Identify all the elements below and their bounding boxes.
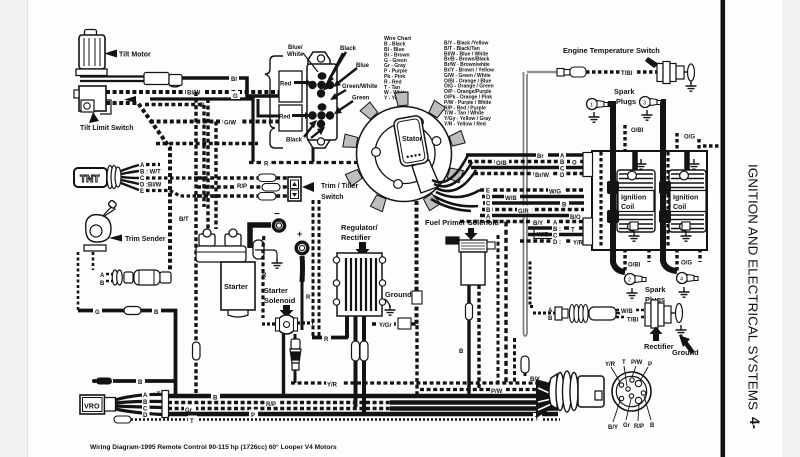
svg-text:Bl: Bl (231, 77, 237, 83)
svg-text:4-: 4- (747, 417, 762, 429)
svg-text:: T: : T (153, 392, 161, 398)
svg-text:A: A (553, 221, 558, 227)
svg-text:E: E (486, 189, 490, 195)
svg-text:P: P (648, 362, 652, 368)
svg-text:B: B (650, 423, 655, 429)
svg-text:A: A (486, 215, 491, 221)
svg-text:Gr: Gr (623, 423, 631, 429)
svg-text:B: B (548, 316, 553, 322)
svg-text:Green/White: Green/White (342, 84, 378, 90)
svg-text:−: − (274, 209, 280, 220)
svg-text:Br/W: Br/W (535, 173, 549, 179)
svg-text:Tilt Limit Switch: Tilt Limit Switch (80, 125, 134, 132)
svg-text:Y/R: Y/R (573, 241, 584, 247)
svg-text:A: A (560, 154, 565, 160)
svg-text:W/G: W/G (549, 190, 561, 196)
svg-text:4: 4 (680, 277, 683, 283)
svg-text:Plugs: Plugs (616, 97, 636, 106)
svg-text:C: C (140, 176, 145, 182)
svg-text:Coil: Coil (621, 204, 634, 211)
svg-text:B/Y: B/Y (533, 221, 543, 227)
svg-text:+: + (297, 229, 302, 239)
svg-text:D: D (560, 173, 565, 179)
svg-text:Black: Black (286, 138, 303, 144)
svg-text:B :: B : (553, 227, 561, 233)
svg-text:B: B (154, 310, 159, 316)
svg-text:C: C (560, 167, 565, 173)
svg-text:B: B (560, 160, 565, 166)
svg-text:G: G (95, 310, 100, 316)
svg-text:C: C (553, 234, 558, 240)
svg-text:Engine Temperature Switch: Engine Temperature Switch (563, 46, 660, 55)
svg-text:B: B (459, 349, 464, 355)
svg-text:P/W: P/W (631, 360, 643, 366)
svg-text:R: R (306, 295, 311, 301)
svg-text:T: T (571, 228, 575, 234)
svg-text:Spark: Spark (614, 87, 635, 96)
svg-text:D :Bl/W: D :Bl/W (140, 183, 162, 189)
svg-text:Regulator/: Regulator/ (341, 223, 378, 232)
svg-text:O/Bl: O/Bl (628, 263, 641, 269)
svg-text:W/B: W/B (621, 309, 633, 315)
svg-text:W/B: W/B (505, 196, 517, 202)
svg-text:Starter: Starter (264, 286, 288, 295)
svg-text:B: B (138, 380, 143, 386)
svg-text:TNT: TNT (80, 174, 99, 185)
svg-text:Bl/W: Bl/W (187, 91, 201, 97)
svg-text:A: A (100, 273, 105, 279)
svg-text:R/P: R/P (634, 424, 644, 430)
svg-text:Rectifier: Rectifier (644, 342, 674, 351)
svg-text:Trim / Tiller: Trim / Tiller (321, 183, 358, 190)
svg-text:G: G (233, 94, 238, 100)
svg-text:T: T (190, 419, 194, 425)
svg-text:Ground: Ground (672, 348, 699, 357)
svg-text:A: A (140, 163, 145, 169)
svg-text:Tilt Motor: Tilt Motor (119, 52, 151, 59)
svg-text:C: C (143, 407, 148, 413)
svg-text:Ignition: Ignition (673, 195, 698, 202)
svg-text:1: 1 (590, 103, 593, 109)
svg-text:Wiring Diagram-1995 Remote Con: Wiring Diagram-1995 Remote Control 90-11… (90, 443, 337, 451)
svg-text:Blue/: Blue/ (288, 45, 303, 51)
svg-text:T: T (622, 360, 626, 366)
svg-text:B/Y: B/Y (608, 425, 618, 431)
svg-text:Black: Black (340, 46, 357, 52)
svg-text:Ignition: Ignition (621, 195, 646, 202)
svg-text:B: B (143, 400, 148, 406)
svg-text:B: B (562, 203, 567, 209)
svg-text:VRO: VRO (84, 402, 100, 411)
svg-text:R: R (324, 337, 329, 343)
svg-text:C: C (486, 202, 491, 208)
svg-text:D: D (486, 195, 491, 201)
svg-text:Y/Gr: Y/Gr (379, 323, 392, 329)
svg-text:Rectifier: Rectifier (341, 233, 371, 242)
svg-text:Blue: Blue (356, 63, 370, 69)
svg-text:O/G: O/G (681, 261, 692, 267)
svg-text:Solenoid: Solenoid (264, 296, 296, 305)
svg-text:B: B (100, 281, 105, 287)
svg-text:Y/R: Y/R (605, 362, 616, 368)
svg-text:O/G: O/G (684, 135, 695, 141)
svg-text:B : W/T: B : W/T (140, 170, 161, 176)
svg-text:R: R (264, 162, 269, 168)
svg-text:Br: Br (537, 154, 544, 160)
svg-text:B: B (486, 208, 491, 214)
svg-text:2: 2 (628, 278, 631, 284)
svg-text:G/W: G/W (224, 121, 236, 127)
svg-text:B/T: B/T (179, 217, 189, 223)
svg-text:B: B (213, 396, 218, 402)
svg-text:Red: Red (280, 82, 292, 88)
svg-text:Switch: Switch (321, 194, 344, 201)
svg-text:D: D (143, 413, 148, 419)
svg-text:A: A (548, 308, 553, 314)
svg-text:E: E (140, 189, 144, 195)
svg-text:Starter: Starter (224, 282, 248, 291)
svg-text:Y/R - Yellow / Red: Y/R - Yellow / Red (444, 122, 486, 128)
svg-text:Red: Red (279, 115, 291, 121)
svg-text:Trim Sender: Trim Sender (125, 236, 166, 243)
svg-text:Ground: Ground (385, 290, 412, 299)
svg-text:Green: Green (352, 96, 370, 102)
svg-text:O/Bl: O/Bl (631, 128, 644, 134)
svg-text:O: O (572, 161, 577, 167)
svg-text:P: P (251, 413, 255, 419)
svg-text:IGNITION AND ELECTRICAL SYSTEM: IGNITION AND ELECTRICAL SYSTEMS (746, 164, 761, 410)
svg-text:3: 3 (643, 101, 646, 107)
svg-text:D :: D : (553, 240, 561, 246)
svg-text:White: White (287, 52, 304, 58)
svg-text:Spark: Spark (645, 285, 666, 294)
svg-text:T/Bl: T/Bl (627, 318, 639, 324)
svg-text:T/Bl: T/Bl (621, 71, 633, 77)
svg-text:Y/R: Y/R (327, 383, 338, 389)
svg-text:Stator: Stator (402, 136, 423, 143)
svg-text:A: A (143, 393, 148, 399)
svg-text:R/P: R/P (237, 184, 247, 190)
svg-text:Coil: Coil (673, 204, 686, 211)
